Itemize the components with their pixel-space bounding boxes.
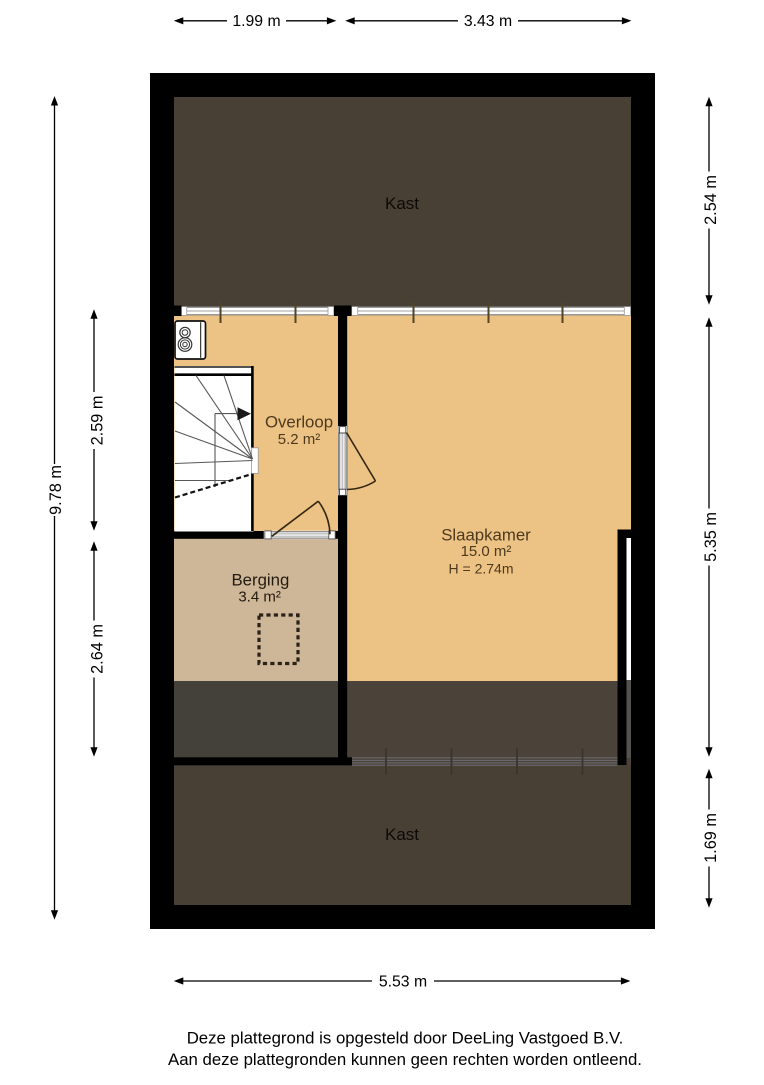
- svg-text:H = 2.74m: H = 2.74m: [449, 561, 514, 577]
- svg-text:2.54 m: 2.54 m: [702, 175, 720, 225]
- svg-text:Kast: Kast: [385, 825, 419, 844]
- svg-text:9.78 m: 9.78 m: [47, 465, 65, 515]
- svg-text:Berging: Berging: [231, 571, 289, 590]
- svg-text:5.2 m²: 5.2 m²: [278, 431, 321, 448]
- svg-text:1.99 m: 1.99 m: [232, 13, 280, 30]
- svg-text:2.59 m: 2.59 m: [88, 396, 106, 446]
- svg-text:1.69 m: 1.69 m: [702, 813, 720, 863]
- svg-text:15.0 m²: 15.0 m²: [461, 543, 512, 560]
- svg-text:Slaapkamer: Slaapkamer: [441, 526, 531, 545]
- svg-text:2.64 m: 2.64 m: [88, 624, 106, 674]
- svg-text:5.35 m: 5.35 m: [702, 512, 720, 562]
- svg-text:Overloop: Overloop: [265, 413, 333, 432]
- svg-text:3.4 m²: 3.4 m²: [238, 589, 281, 606]
- svg-text:Deze plattegrond is opgesteld: Deze plattegrond is opgesteld door DeeLi…: [187, 1029, 624, 1048]
- svg-text:3.43 m: 3.43 m: [464, 13, 512, 30]
- svg-text:5.53 m: 5.53 m: [379, 974, 427, 991]
- svg-text:Aan deze plattegronden kunnen: Aan deze plattegronden kunnen geen recht…: [168, 1050, 642, 1069]
- svg-text:Kast: Kast: [385, 194, 419, 213]
